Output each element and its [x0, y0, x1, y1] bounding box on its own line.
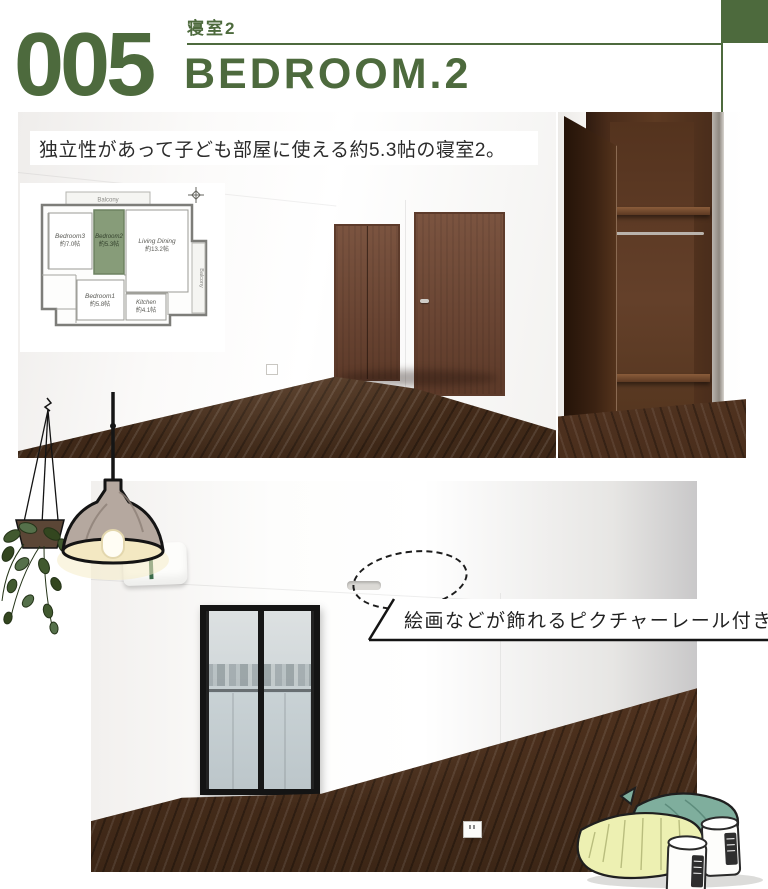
window-right-frame	[311, 611, 314, 789]
closet-hanger-rod	[604, 232, 704, 235]
picture-rail-caption: 絵画などが飾れるピクチャーレール付き。	[360, 597, 768, 644]
svg-text:Bedroom1: Bedroom1	[85, 293, 115, 300]
closet-double-door	[334, 224, 400, 381]
door-handle	[420, 299, 429, 303]
corner-accent-line	[721, 0, 723, 113]
svg-text:Kitchen: Kitchen	[136, 300, 157, 306]
picture-rail-caption-text: 絵画などが飾れるピクチャーレール付き。	[404, 606, 768, 633]
corner-accent-square	[723, 0, 768, 43]
section-index-number: 005	[14, 20, 152, 110]
svg-text:約13.2帖: 約13.2帖	[145, 245, 169, 253]
balcony-window	[200, 605, 320, 795]
svg-text:Living Dining: Living Dining	[138, 238, 176, 245]
closet-open-door	[564, 116, 617, 450]
window-left-frame	[206, 611, 209, 789]
floorplan-drawing: Balcony Balcony Bedroom3 約7.0帖 Bedroom2 …	[20, 183, 225, 352]
jar	[667, 836, 707, 889]
jar	[701, 816, 740, 876]
svg-text:Bedroom2: Bedroom2	[95, 234, 123, 240]
pillows-and-jars-illustration	[565, 770, 768, 889]
balcony-top-label: Balcony	[97, 198, 118, 204]
room-bedroom1: Bedroom1 約5.8帖	[77, 280, 124, 320]
window-center-stile	[258, 611, 264, 789]
wall-outlet	[463, 821, 482, 838]
wall-corner-line	[405, 200, 406, 390]
closet-photo	[558, 112, 746, 458]
section-title-en: BEDROOM.2	[184, 50, 471, 99]
svg-text:約5.3帖: 約5.3帖	[99, 240, 119, 248]
main-caption-text: 独立性があって子ども部屋に使える約5.3帖の寝室2。	[39, 135, 505, 162]
room-living-dining: Living Dining 約13.2帖	[126, 210, 188, 292]
main-caption-bar: 独立性があって子ども部屋に使える約5.3帖の寝室2。	[30, 131, 538, 165]
header-rule	[187, 43, 723, 45]
svg-text:約5.8帖: 約5.8帖	[90, 300, 110, 308]
floorplan: Balcony Balcony Bedroom3 約7.0帖 Bedroom2 …	[20, 183, 225, 352]
compass-icon	[188, 187, 204, 203]
room-kitchen: Kitchen 約4.1帖	[126, 294, 166, 320]
wall-outlet	[266, 364, 278, 375]
pendant-lamp-illustration	[55, 392, 185, 584]
room-bedroom3: Bedroom3 約7.0帖	[49, 213, 92, 269]
svg-text:Bedroom3: Bedroom3	[55, 233, 85, 240]
section-label-ja: 寝室2	[187, 14, 236, 39]
window-glass	[206, 611, 314, 789]
balcony-right-label: Balcony	[198, 268, 204, 288]
bedroom2-listing-section: 005 寝室2 BEDROOM.2 独立性があって子ども部屋に使える約5.3帖の…	[0, 0, 768, 889]
entry-door	[414, 212, 505, 396]
svg-text:約7.0帖: 約7.0帖	[60, 240, 80, 248]
room-bedroom2-highlighted: Bedroom2 約5.3帖	[94, 210, 124, 274]
svg-text:約4.1帖: 約4.1帖	[136, 306, 156, 314]
